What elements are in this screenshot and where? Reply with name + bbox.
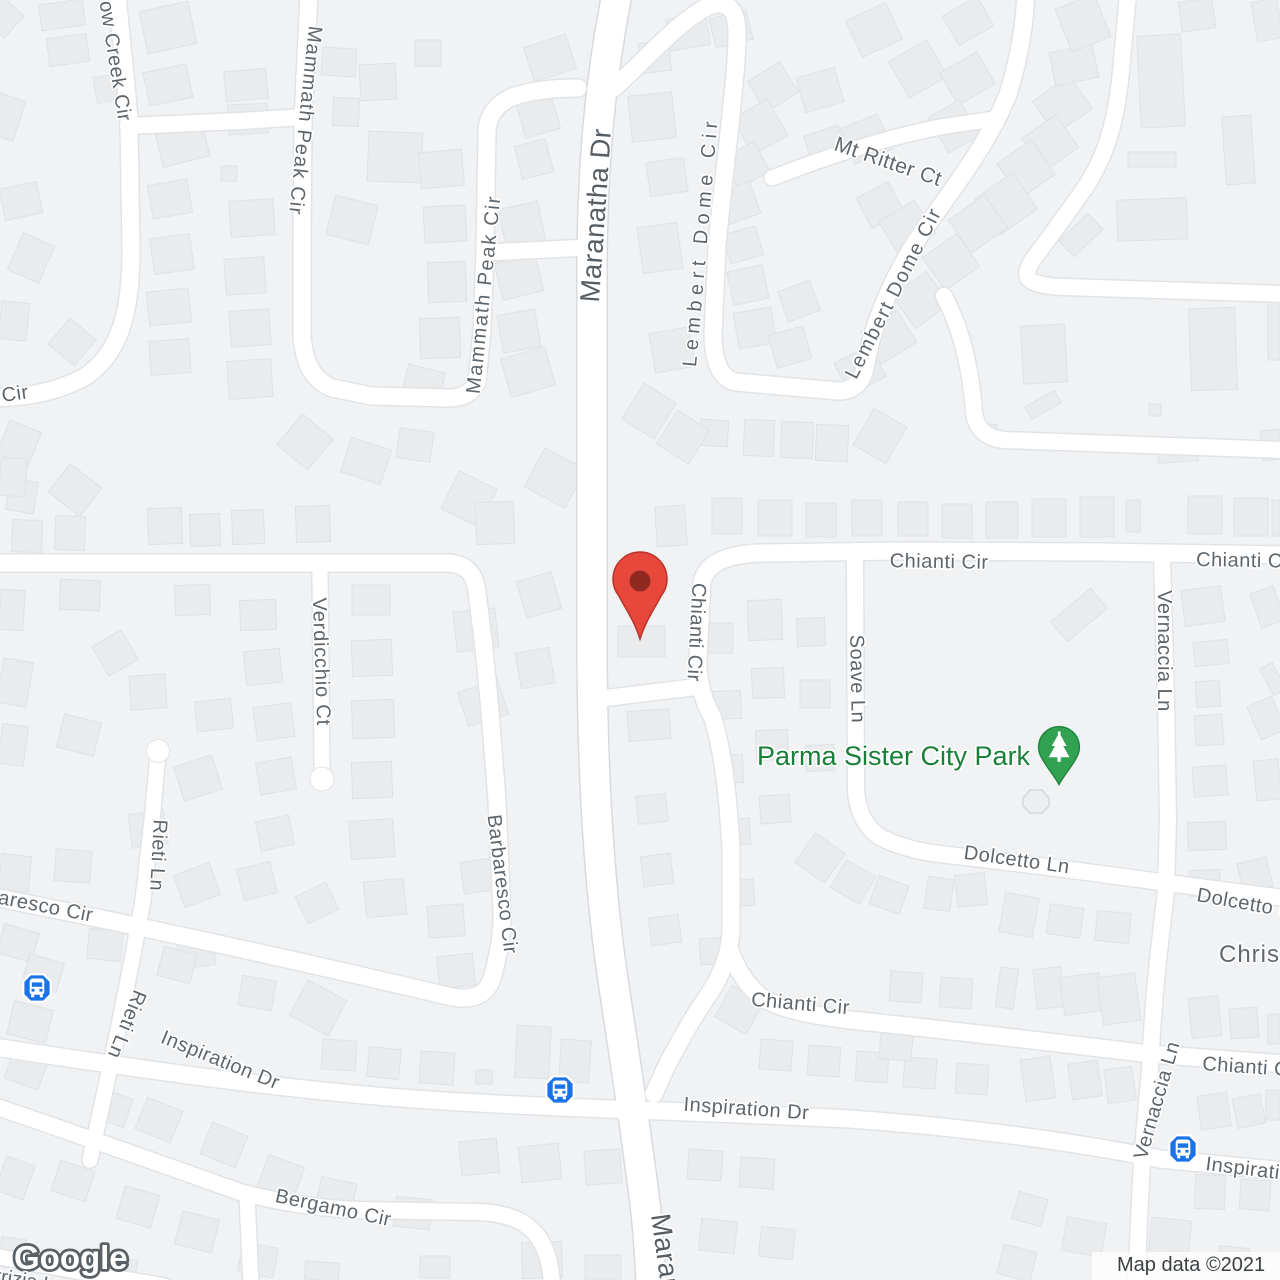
svg-text:Rieti Ln: Rieti Ln [145,819,171,892]
svg-text:Parma Sister City Park: Parma Sister City Park [757,741,1031,771]
svg-text:Vernaccia Ln: Vernaccia Ln [1153,590,1175,712]
svg-text:Map data ©2021: Map data ©2021 [1117,1254,1265,1276]
svg-text:Christen: Christen [1219,941,1280,968]
svg-text:Chianti Cir: Chianti Cir [1196,549,1280,573]
svg-text:Chianti Cir: Chianti Cir [889,550,988,574]
svg-text:Soave Ln: Soave Ln [845,634,869,723]
svg-text:Cir: Cir [0,381,30,407]
svg-text:Verdicchio Ct: Verdicchio Ct [308,597,334,726]
